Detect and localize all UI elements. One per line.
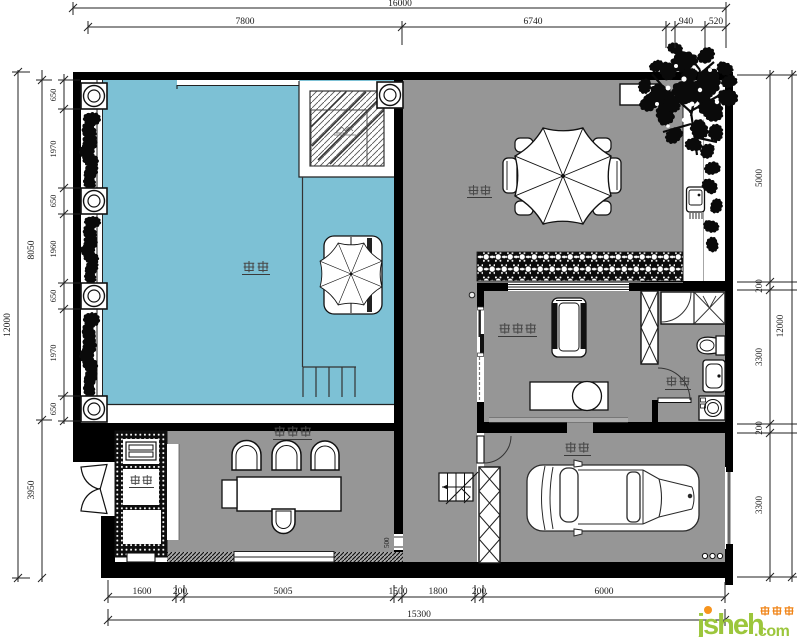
svg-text:12000: 12000 xyxy=(775,314,785,337)
svg-text:650: 650 xyxy=(48,195,58,208)
svg-text:3950: 3950 xyxy=(27,480,37,499)
svg-text:12000: 12000 xyxy=(3,313,13,337)
svg-text:1970: 1970 xyxy=(48,345,58,362)
svg-text:7800: 7800 xyxy=(236,17,255,27)
svg-text:1600: 1600 xyxy=(133,587,152,597)
svg-text:3300: 3300 xyxy=(754,348,764,367)
svg-text:6000: 6000 xyxy=(595,587,614,597)
svg-text:16000: 16000 xyxy=(388,0,412,9)
svg-text:1960: 1960 xyxy=(48,241,58,258)
svg-text:200: 200 xyxy=(754,421,764,435)
svg-text:200: 200 xyxy=(173,587,188,597)
svg-text:650: 650 xyxy=(48,403,58,416)
svg-text:650: 650 xyxy=(48,89,58,102)
svg-text:6740: 6740 xyxy=(524,17,543,27)
svg-text:5000: 5000 xyxy=(754,169,764,188)
svg-text:520: 520 xyxy=(709,17,724,27)
svg-text:1970: 1970 xyxy=(48,141,58,158)
svg-text:1500: 1500 xyxy=(389,587,408,597)
svg-text:650: 650 xyxy=(48,290,58,303)
svg-text:1800: 1800 xyxy=(429,587,448,597)
svg-text:.com: .com xyxy=(754,623,790,637)
svg-text:8050: 8050 xyxy=(27,240,37,259)
svg-text:5005: 5005 xyxy=(274,587,293,597)
svg-text:3300: 3300 xyxy=(754,496,764,515)
svg-text:940: 940 xyxy=(679,17,694,27)
svg-text:15300: 15300 xyxy=(407,610,431,620)
svg-text:500: 500 xyxy=(383,537,391,548)
svg-text:200: 200 xyxy=(754,279,764,293)
svg-text:200: 200 xyxy=(472,587,487,597)
